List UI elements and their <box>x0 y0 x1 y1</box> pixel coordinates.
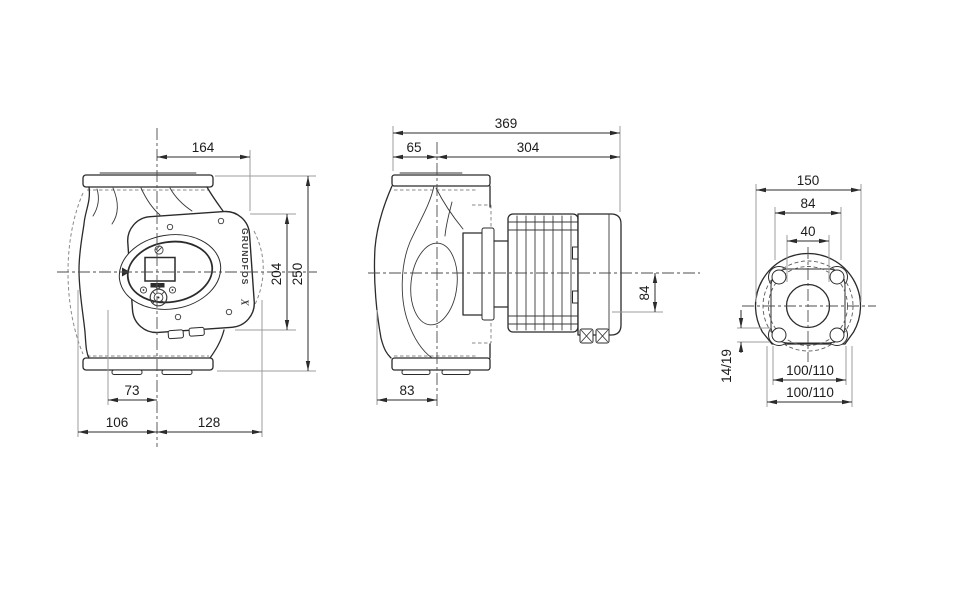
side-view: 369 65 304 84 83 <box>368 116 700 407</box>
side-top-flange <box>392 173 490 186</box>
display-button-bar <box>151 283 165 288</box>
dim-label-front-foot: 73 <box>124 383 139 398</box>
display <box>145 258 175 282</box>
dim-label-bolt-circle-lower: 100/110 <box>786 385 834 400</box>
dim-label-side-right: 304 <box>517 140 540 155</box>
dim-label-side-total: 369 <box>495 116 518 131</box>
dim-label-side-left: 65 <box>406 140 421 155</box>
control-box <box>578 214 621 335</box>
dim-label-side-foot: 83 <box>399 383 414 398</box>
dim-label-side-half-height: 84 <box>637 285 652 301</box>
dim-label-front-total-height: 250 <box>290 263 305 286</box>
flange-view: 150 84 40 14/19 100/110 100/110 <box>719 173 876 407</box>
dim-label-front-panel-height: 204 <box>269 262 284 285</box>
front-bottom-flange <box>83 358 213 375</box>
bolt-hole <box>830 328 844 342</box>
dim-label-flange-pads: 84 <box>800 196 816 211</box>
grundfos-logo-mark-icon: X <box>239 298 250 306</box>
dim-label-bolt-circle-upper: 100/110 <box>786 363 834 378</box>
control-panel: GRUNDFOS X <box>114 210 256 339</box>
dim-label-front-width: 164 <box>192 140 215 155</box>
dim-label-flange-od: 150 <box>797 173 820 188</box>
bolt-hole <box>830 270 844 284</box>
dim-label-front-left: 106 <box>106 415 129 430</box>
bolt-hole <box>772 270 786 284</box>
bolt-hole <box>772 328 786 342</box>
grundfos-logo-text: GRUNDFOS <box>240 228 250 285</box>
dim-label-front-right: 128 <box>198 415 221 430</box>
pump-dimensional-drawing: GRUNDFOS X 164 250 204 73 106 <box>0 0 976 600</box>
dim-label-flange-bore: 40 <box>800 224 815 239</box>
dim-label-flange-hole: 14/19 <box>719 349 734 383</box>
front-view: GRUNDFOS X 164 250 204 73 106 <box>57 128 317 447</box>
front-top-flange <box>83 173 213 187</box>
side-pump-housing <box>374 186 508 358</box>
pump-dimensional-drawing-page: GRUNDFOS X 164 250 204 73 106 <box>0 0 976 600</box>
side-bottom-flange <box>392 358 490 375</box>
